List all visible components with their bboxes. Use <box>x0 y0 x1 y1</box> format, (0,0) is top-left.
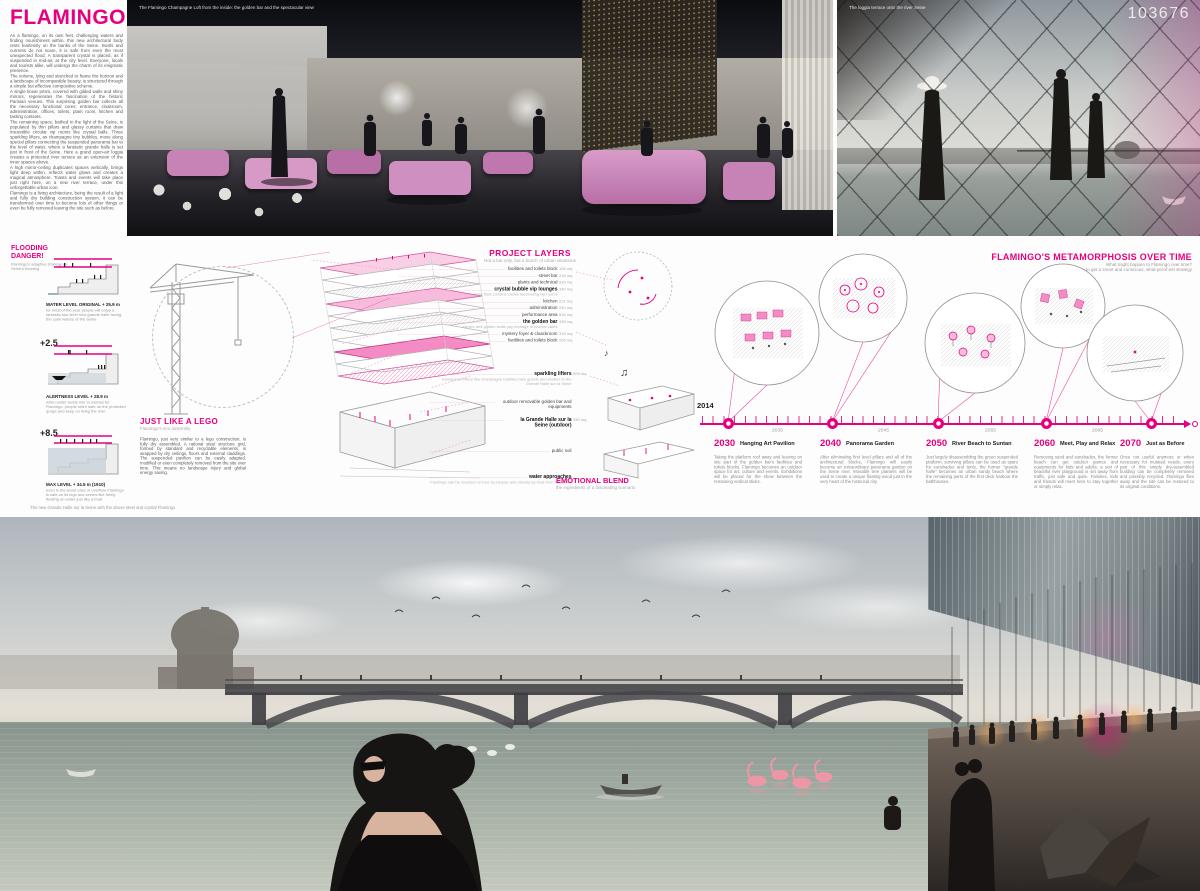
milestone-title: Just as Before <box>1146 440 1184 446</box>
boat <box>596 774 664 800</box>
intro-paragraph: A single linear prism, covered with gild… <box>10 89 123 119</box>
milestone-year: 2070 <box>1120 438 1141 449</box>
timeline-dot-2060 <box>1041 418 1052 429</box>
terrace-dark-corner <box>837 0 1007 120</box>
layer-row-sub: mirrors and golden walls pay homage to h… <box>398 325 558 329</box>
layer-row-sub: glass float curtains create fascinating … <box>398 293 558 297</box>
layers-title: PROJECT LAYERS <box>430 248 630 258</box>
milestone-year: 2050 <box>926 438 947 449</box>
layers-subtitle: Not a bar only, but a bunch of urban sit… <box>430 258 630 263</box>
intro-paragraph: As a flamingo, on its own feet, challeng… <box>10 33 123 73</box>
milestone-year: 2060 <box>1034 438 1055 449</box>
layer-row: street bar218 mq <box>398 273 576 278</box>
presentation-board: FLAMINGO As a flamingo, on its own feet,… <box>0 0 1200 891</box>
milestone-text: Removing sand and sunshades, the former … <box>1034 455 1118 524</box>
intro-paragraph: The remaining space, bathed in the light… <box>10 120 123 165</box>
milestone-text: Just largely disassembling the green sus… <box>926 455 1018 514</box>
milestone-text: After eliminating first level pillars an… <box>820 455 912 514</box>
layer-row: outdoor removable golden bar and equipme… <box>430 399 590 409</box>
birds <box>395 585 730 617</box>
intro-paragraph: Flamingo is a living architecture, being… <box>10 191 123 211</box>
milestone-text: Once not useful anymore or when necessar… <box>1120 455 1194 524</box>
layer-row: performance area516 mq <box>398 312 576 317</box>
swans <box>467 744 515 756</box>
milestone-2030: 2030 Hanging Art Pavilion Taking the pla… <box>714 433 802 514</box>
layer-row-sub: Flamingo can be reached on foot, by bicy… <box>430 481 572 485</box>
milestone-2050: 2050 River Beach to Suntan Just largely … <box>926 433 1018 514</box>
terrace-caption: The loggia terrace onto the river Seine <box>849 5 926 10</box>
layer-row: kitchen221 mq <box>398 298 576 303</box>
milestone-title: Panorama Garden <box>846 440 894 446</box>
layer-row: the golden bar435 mq <box>398 319 576 325</box>
intro-paragraph: The volume, lying and stretched to frame… <box>10 74 123 89</box>
milestone-text: Taking the platform roof away and leavin… <box>714 455 802 514</box>
timeline-dot-2030 <box>723 418 734 429</box>
timeline-year: 2065 <box>1092 427 1103 433</box>
timeline-arrow-icon <box>1184 420 1191 428</box>
pavilion-pillars <box>952 563 1192 729</box>
layer-row: administration240 mq <box>398 305 576 310</box>
layer-row: plants and technical516 mq <box>398 280 576 285</box>
metamorphosis-circles <box>695 248 1200 430</box>
emotional-subtitle: the ingredients of a fascinating scenari… <box>556 485 676 490</box>
timeline-dot-2050 <box>933 418 944 429</box>
timeline-year: 2035 <box>772 427 783 433</box>
layer-row: sparkling lifters309 mq <box>430 371 590 377</box>
timeline-start-year: 2014 <box>697 401 714 410</box>
layer-row: mystery foyer & cloackroom318 mq <box>398 331 576 336</box>
board-number: 103676 <box>1128 5 1190 23</box>
milestone-2040: 2040 Panorama Garden After eliminating f… <box>820 433 912 514</box>
timeline-dot-2070 <box>1146 418 1157 429</box>
timeline-dot-2040 <box>827 418 838 429</box>
flamingos <box>748 758 832 795</box>
render-champagne-loft: The Flamingo Champagne Loft from the ins… <box>127 0 833 236</box>
milestone-year: 2030 <box>714 438 735 449</box>
layer-row: crystal bubble vip lounges340 mq <box>398 286 576 292</box>
timeline-arrow-ring-icon <box>1192 421 1198 427</box>
render-grande-halle-seine <box>0 517 1200 891</box>
milestone-title: Meet, Play and Relax <box>1060 440 1115 446</box>
small-boat <box>66 769 96 777</box>
page-title: FLAMINGO <box>10 6 126 30</box>
intro-paragraph: A high mirror-ceiling duplicates spaces … <box>10 165 123 190</box>
milestone-2070: 2070 Just as Before Once not useful anym… <box>1120 433 1194 524</box>
intro-text: As a flamingo, on its own feet, challeng… <box>10 33 123 237</box>
institut-dome <box>158 607 254 689</box>
milestone-title: River Beach to Suntan <box>952 440 1012 446</box>
terrace-pink-glow <box>1110 0 1200 236</box>
loft-people-silhouettes <box>127 0 833 236</box>
layer-row: facilities and toilets block105 mq <box>398 266 576 271</box>
layer-row: public soil <box>430 448 590 453</box>
city-skyline <box>0 655 960 689</box>
timeline-year: 2045 <box>878 427 889 433</box>
layer-row: facilities and toilets block205 mq <box>398 338 576 343</box>
layer-row: la Grande Halle sur la Seine (outdoor)33… <box>430 417 590 428</box>
render-loggia-terrace: The loggia terrace onto the river Seine … <box>837 0 1200 236</box>
river-scene <box>0 517 1200 891</box>
layer-row-sub: transparent lifters like champagne bubbl… <box>430 378 572 387</box>
milestone-title: Hanging Art Pavilion <box>740 440 795 446</box>
kneeling-kid <box>884 796 901 830</box>
foreground-woman <box>330 733 482 891</box>
river-caption: The new Grande Halle sur la Seine with t… <box>30 505 430 515</box>
emotional-title: EMOTIONAL BLEND <box>556 476 676 485</box>
layers-header: PROJECT LAYERS Not a bar only, but a bun… <box>430 248 630 268</box>
loft-caption: The Flamingo Champagne Loft from the ins… <box>139 5 314 10</box>
milestone-year: 2040 <box>820 438 841 449</box>
emotional-blend-section: EMOTIONAL BLEND the ingredients of a fas… <box>556 476 676 495</box>
milestone-2060: 2060 Meet, Play and Relax Removing sand … <box>1034 433 1118 524</box>
timeline-year: 2055 <box>985 427 996 433</box>
